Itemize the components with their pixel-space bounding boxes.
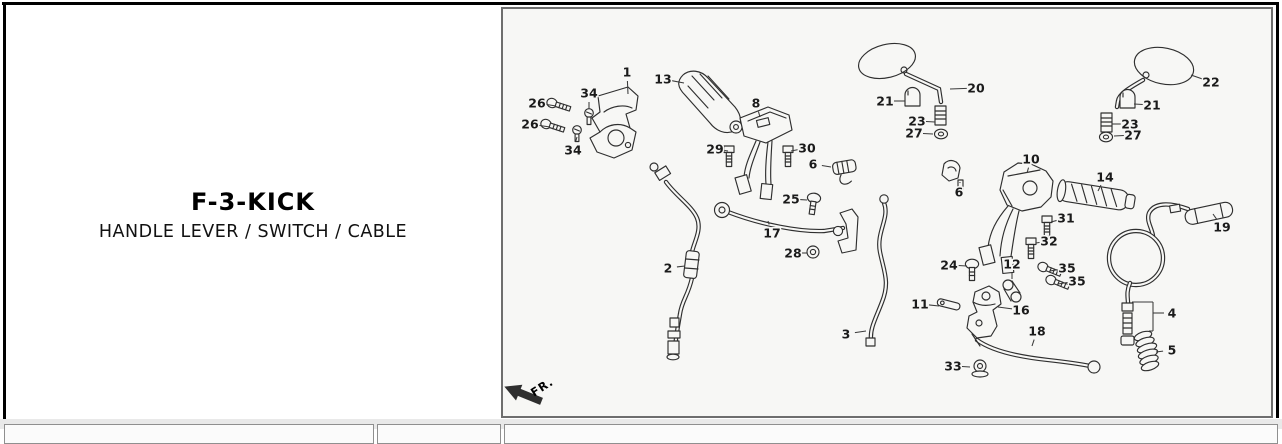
callout-label-25: 25 [782,192,799,207]
nut-28 [807,246,819,258]
callout-label-29: 29 [706,142,723,157]
part-13-throttle-grip [679,71,742,133]
callout-leader-27 [923,133,933,134]
callout-label-8: 8 [752,96,761,111]
bolt-30 [783,146,793,167]
callout-label-12: 12 [1003,257,1020,272]
callout-leader-23 [926,121,935,122]
part-16-lever-bracket [967,286,1001,338]
callout-label-35: 35 [1068,274,1085,289]
callout-label-33: 33 [944,359,961,374]
part-2-throttle-cable [650,163,700,360]
spring-5 [1133,329,1160,372]
callout-label-22: 22 [1202,75,1219,90]
callout-leader-16 [998,307,1012,309]
part-12-joint [1003,280,1021,302]
callout-label-27: 27 [1124,128,1141,143]
callout-label-34: 34 [580,86,598,101]
callout-label-13: 13 [654,72,671,87]
callout-label-28: 28 [784,246,801,261]
callout-leader-6 [822,165,831,167]
callout-label-5: 5 [1168,343,1177,358]
callout-leader-21 [1134,104,1143,105]
callout-label-16: 16 [1012,303,1030,318]
callout-label-11: 11 [911,297,928,312]
nut-27-b [1100,132,1113,142]
callout-label-21: 21 [876,94,893,109]
callout-label-27: 27 [905,126,922,141]
callout-label-4: 4 [1168,306,1177,321]
parts-table-strip [0,419,1282,429]
part-6-clamp-a [832,159,859,186]
part-8-switch-housing [735,107,792,200]
parts-table-cell-3 [504,424,1278,444]
callout-label-6: 6 [809,157,818,172]
callout-label-1: 1 [623,65,632,80]
bolt-32 [1026,238,1036,259]
callout-label-31: 31 [1057,211,1074,226]
parts-diagram-panel: FR. 113263426348293062517282320212327222… [501,7,1273,418]
bolt-24 [965,259,978,280]
part-3-cable [866,195,888,346]
callout-leader-2 [677,266,685,267]
callout-label-26: 26 [521,117,539,132]
callout-label-20: 20 [967,81,985,96]
cap-21-a [905,88,920,107]
callout-label-17: 17 [763,226,780,241]
callout-label-19: 19 [1213,220,1230,235]
part-20-mirror [855,38,941,102]
callout-leader-29 [724,150,728,151]
nut-33 [972,360,988,377]
callout-label-32: 32 [1040,234,1057,249]
bolt-25 [805,192,821,215]
part-18-clutch-lever [972,334,1100,373]
callout-leader-18 [1032,340,1034,346]
callout-label-24: 24 [940,258,958,273]
callout-label-2: 2 [664,261,673,276]
callout-label-10: 10 [1022,152,1040,167]
callout-label-26: 26 [528,96,546,111]
callout-leader-20 [950,88,967,89]
part-11-lever-piece [937,298,961,310]
callout-label-34: 34 [564,143,582,158]
callout-label-14: 14 [1096,170,1114,185]
bolt-29 [724,146,734,167]
callout-label-18: 18 [1028,324,1045,339]
callout-leader-3 [855,331,866,333]
callout-label-6: 6 [955,185,964,200]
callout-leader-22 [1191,75,1203,79]
callout-label-21: 21 [1143,98,1160,113]
part-4-clutch-cable [1109,204,1188,345]
parts-table-cell-1 [4,424,374,444]
callout-label-30: 30 [798,141,816,156]
callout-leader-1 [627,81,628,94]
callout-leader-24 [958,265,967,266]
parts-table-cell-2 [377,424,501,444]
screw-34-a [585,109,594,125]
diagram-canvas: FR. 113263426348293062517282320212327222… [0,0,1282,429]
screw-34-b [573,126,582,142]
callout-leader-27 [1114,135,1124,136]
fr-label: FR. [528,375,556,400]
adjuster-23-a [935,106,946,125]
cap-21-b [1120,90,1135,108]
adjuster-23-b [1101,113,1112,132]
callout-label-3: 3 [842,327,851,342]
nut-27-a [935,129,948,139]
